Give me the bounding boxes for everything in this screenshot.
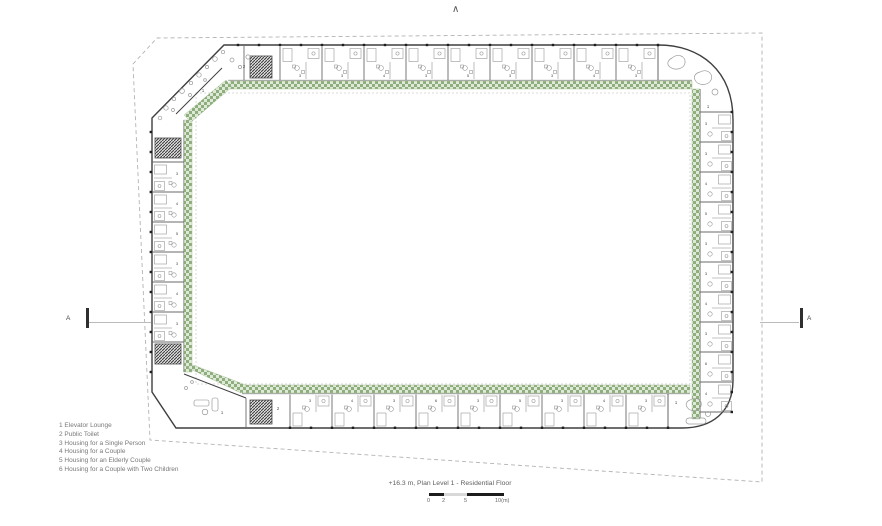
legend-item-housing-elderly: 5 Housing for an Elderly Couple — [59, 457, 178, 466]
stair-core — [155, 138, 181, 158]
scale-bar-segment — [467, 493, 504, 496]
section-cut-bar-right — [800, 308, 803, 328]
section-letter-right: A — [807, 315, 811, 322]
section-cut-line-right — [760, 322, 799, 323]
scale-bar-segments — [429, 493, 509, 496]
scale-bar-segment — [444, 493, 467, 496]
stair-core — [250, 400, 272, 424]
legend: 1 Elevator Lounge 2 Public Toilet 3 Hous… — [59, 422, 178, 475]
section-cut-line-left — [89, 322, 151, 323]
scale-tick: 5 — [464, 498, 467, 504]
scale-tick: 0 — [427, 498, 430, 504]
section-cut-bar-left — [86, 308, 89, 328]
scale-tick: 2 — [442, 498, 445, 504]
stair-core — [250, 56, 272, 78]
scale-bar-segment — [429, 493, 444, 496]
floor-plan-sheet: 3343533433436353433453433345334364111122… — [0, 0, 882, 526]
scale-bar: 0 2 5 10(m) — [429, 493, 509, 507]
plan-root: 3343533433436353433453433345334364111122 — [133, 33, 762, 482]
section-letter-left: A — [66, 315, 70, 322]
north-arrow-icon: ∧ — [452, 4, 459, 15]
courtyard — [196, 93, 690, 384]
legend-item-housing-children: 6 Housing for a Couple with Two Children — [59, 466, 178, 475]
plan-caption: +16.3 m, Plan Level 1 - Residential Floo… — [340, 480, 560, 487]
legend-item-housing-single: 3 Housing for a Single Person — [59, 440, 178, 449]
stair-core — [155, 344, 181, 364]
legend-item-public-toilet: 2 Public Toilet — [59, 431, 178, 440]
section-marker-a-left: A — [66, 305, 156, 339]
scale-tick: 10(m) — [495, 498, 509, 504]
legend-item-elevator-lounge: 1 Elevator Lounge — [59, 422, 178, 431]
section-marker-a-right: A — [760, 305, 820, 339]
legend-item-housing-couple: 4 Housing for a Couple — [59, 448, 178, 457]
